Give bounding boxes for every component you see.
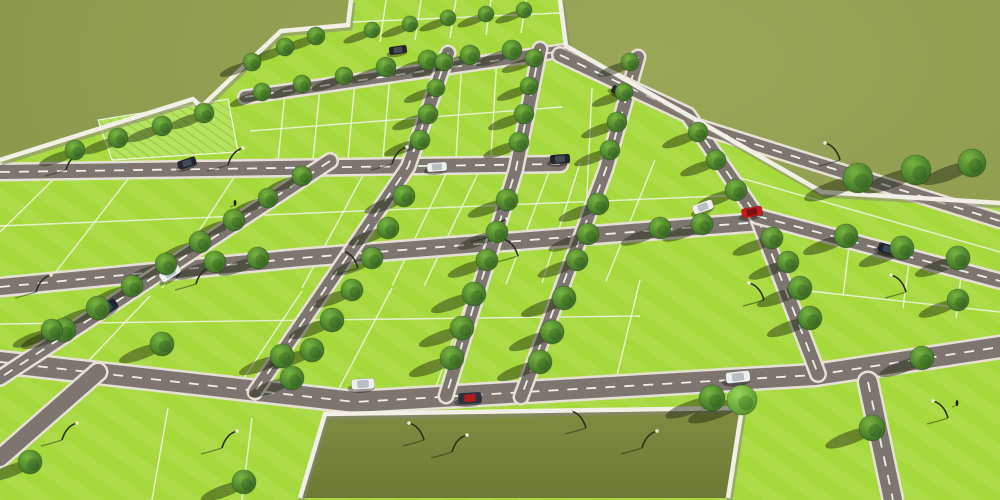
aerial-render-svg [0, 0, 1000, 500]
lamp-head [241, 146, 245, 150]
pedestrian [956, 400, 959, 406]
lamp-head [407, 421, 411, 425]
pedestrian [234, 200, 237, 206]
lamp-head [569, 409, 573, 413]
aerial-render [0, 0, 1000, 500]
lamp-head [747, 281, 751, 285]
pond-layer [300, 408, 742, 498]
lamp-head [655, 429, 659, 433]
lamp-head [889, 273, 893, 277]
lamp-head [505, 217, 509, 221]
lamp-head [465, 433, 469, 437]
lamp-head [235, 429, 239, 433]
lamp-head [341, 249, 345, 253]
lamp-head [405, 145, 409, 149]
lamp-head [49, 273, 53, 277]
lamp-head [931, 399, 935, 403]
lamp-head [823, 141, 827, 145]
lamp-head [75, 421, 79, 425]
park-parcel [300, 408, 742, 498]
